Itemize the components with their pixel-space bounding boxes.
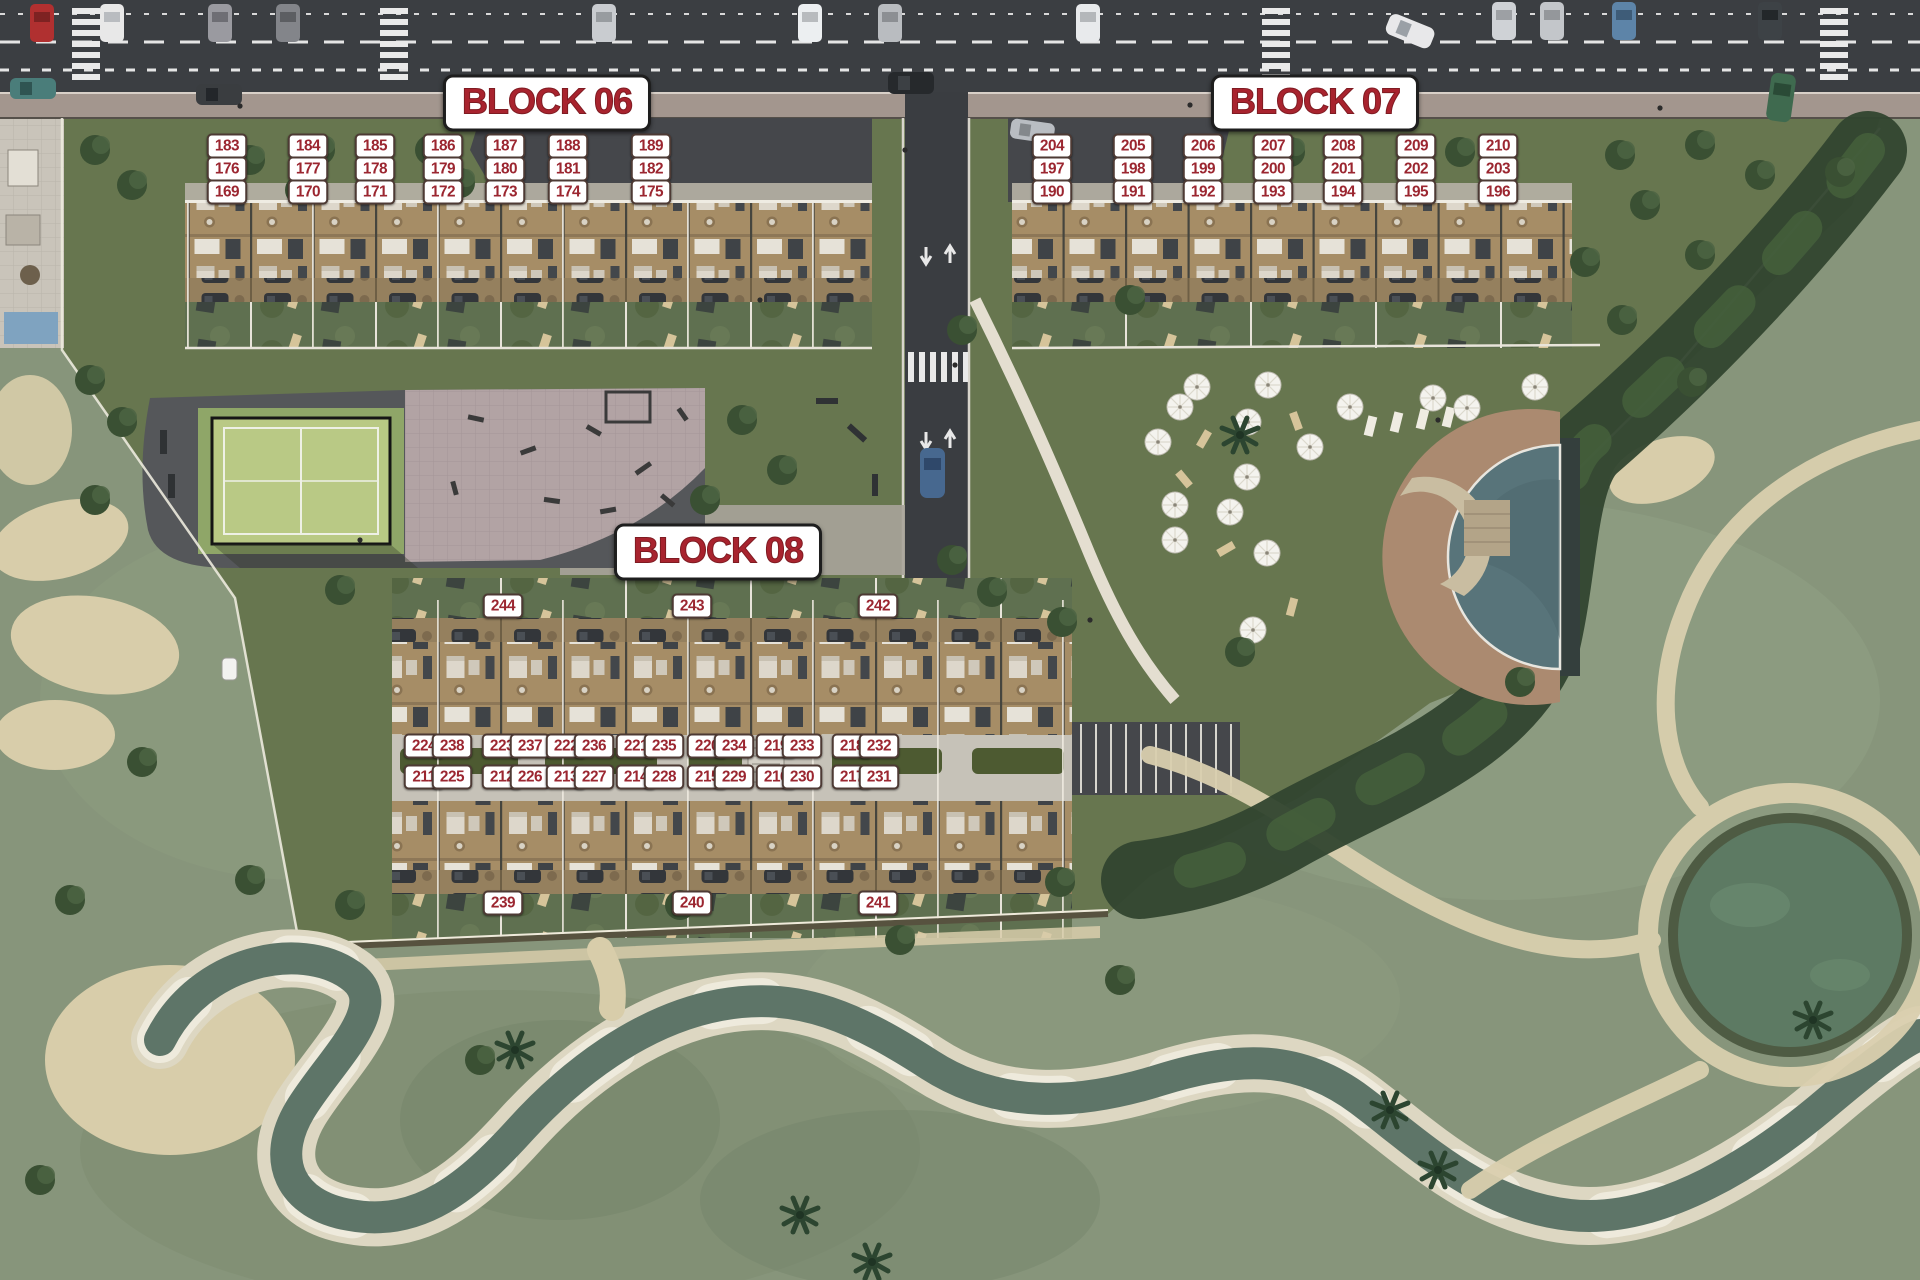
unit-label[interactable]: 233 — [782, 734, 822, 759]
unit-label[interactable]: 231 — [859, 765, 899, 790]
unit-label[interactable]: 236 — [574, 734, 614, 759]
unit-label[interactable]: 180 — [485, 157, 525, 182]
unit-labels-layer: BLOCK 06 BLOCK 07 BLOCK 08 1831841851861… — [0, 0, 1920, 1280]
unit-label[interactable]: 201 — [1323, 157, 1363, 182]
unit-label[interactable]: 239 — [483, 891, 523, 916]
unit-label[interactable]: 237 — [510, 734, 550, 759]
unit-label[interactable]: 190 — [1032, 180, 1072, 205]
unit-label[interactable]: 243 — [672, 594, 712, 619]
unit-label[interactable]: 242 — [858, 594, 898, 619]
unit-label[interactable]: 184 — [288, 134, 328, 159]
unit-label[interactable]: 174 — [548, 180, 588, 205]
unit-label[interactable]: 200 — [1253, 157, 1293, 182]
unit-label[interactable]: 183 — [207, 134, 247, 159]
unit-label[interactable]: 185 — [355, 134, 395, 159]
unit-label[interactable]: 240 — [672, 891, 712, 916]
unit-label[interactable]: 199 — [1183, 157, 1223, 182]
block-07-title: BLOCK 07 — [1211, 75, 1419, 132]
unit-label[interactable]: 234 — [714, 734, 754, 759]
unit-label[interactable]: 244 — [483, 594, 523, 619]
unit-label[interactable]: 188 — [548, 134, 588, 159]
unit-label[interactable]: 186 — [423, 134, 463, 159]
unit-label[interactable]: 227 — [574, 765, 614, 790]
unit-label[interactable]: 229 — [714, 765, 754, 790]
unit-label[interactable]: 194 — [1323, 180, 1363, 205]
unit-label[interactable]: 172 — [423, 180, 463, 205]
unit-label[interactable]: 238 — [432, 734, 472, 759]
unit-label[interactable]: 232 — [859, 734, 899, 759]
unit-label[interactable]: 173 — [485, 180, 525, 205]
unit-label[interactable]: 209 — [1396, 134, 1436, 159]
unit-label[interactable]: 226 — [510, 765, 550, 790]
unit-label[interactable]: 187 — [485, 134, 525, 159]
unit-label[interactable]: 170 — [288, 180, 328, 205]
unit-label[interactable]: 195 — [1396, 180, 1436, 205]
unit-label[interactable]: 182 — [631, 157, 671, 182]
unit-label[interactable]: 206 — [1183, 134, 1223, 159]
unit-label[interactable]: 203 — [1478, 157, 1518, 182]
unit-label[interactable]: 181 — [548, 157, 588, 182]
unit-label[interactable]: 210 — [1478, 134, 1518, 159]
unit-label[interactable]: 192 — [1183, 180, 1223, 205]
unit-label[interactable]: 197 — [1032, 157, 1072, 182]
unit-label[interactable]: 171 — [355, 180, 395, 205]
unit-label[interactable]: 179 — [423, 157, 463, 182]
unit-label[interactable]: 228 — [644, 765, 684, 790]
unit-label[interactable]: 193 — [1253, 180, 1293, 205]
unit-label[interactable]: 177 — [288, 157, 328, 182]
unit-label[interactable]: 235 — [644, 734, 684, 759]
unit-label[interactable]: 205 — [1113, 134, 1153, 159]
unit-label[interactable]: 176 — [207, 157, 247, 182]
unit-label[interactable]: 241 — [858, 891, 898, 916]
unit-label[interactable]: 198 — [1113, 157, 1153, 182]
unit-label[interactable]: 207 — [1253, 134, 1293, 159]
unit-label[interactable]: 189 — [631, 134, 671, 159]
unit-label[interactable]: 178 — [355, 157, 395, 182]
site-plan: BLOCK 06 BLOCK 07 BLOCK 08 1831841851861… — [0, 0, 1920, 1280]
unit-label[interactable]: 191 — [1113, 180, 1153, 205]
block-06-title: BLOCK 06 — [443, 75, 651, 132]
unit-label[interactable]: 208 — [1323, 134, 1363, 159]
unit-label[interactable]: 169 — [207, 180, 247, 205]
unit-label[interactable]: 225 — [432, 765, 472, 790]
unit-label[interactable]: 175 — [631, 180, 671, 205]
unit-label[interactable]: 204 — [1032, 134, 1072, 159]
unit-label[interactable]: 230 — [782, 765, 822, 790]
unit-label[interactable]: 202 — [1396, 157, 1436, 182]
block-08-title: BLOCK 08 — [614, 524, 822, 581]
unit-label[interactable]: 196 — [1478, 180, 1518, 205]
